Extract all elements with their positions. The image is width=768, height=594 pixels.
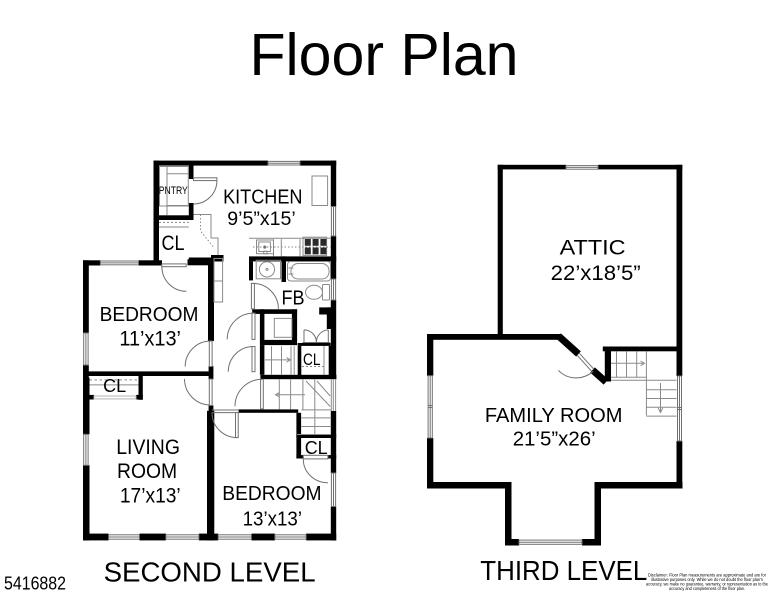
svg-text:9’5”x15’: 9’5”x15’ bbox=[227, 208, 296, 230]
svg-text:BEDROOM: BEDROOM bbox=[222, 482, 321, 505]
svg-text:CL: CL bbox=[305, 437, 328, 458]
svg-text:13’x13’: 13’x13’ bbox=[243, 508, 302, 531]
svg-text:5416882: 5416882 bbox=[4, 573, 66, 594]
svg-text:ATTIC: ATTIC bbox=[560, 235, 626, 259]
svg-text:CL: CL bbox=[162, 232, 185, 255]
svg-text:Floor Plan: Floor Plan bbox=[250, 22, 519, 88]
svg-text:FAMILY ROOM: FAMILY ROOM bbox=[485, 405, 623, 427]
svg-text:accuracy and completeness of t: accuracy and completeness of the floor p… bbox=[669, 586, 745, 591]
svg-text:SECOND LEVEL: SECOND LEVEL bbox=[104, 557, 316, 588]
svg-text:PNTRY: PNTRY bbox=[159, 185, 188, 197]
svg-text:17’x13’: 17’x13’ bbox=[120, 484, 181, 507]
svg-text:21’5”x26’: 21’5”x26’ bbox=[513, 428, 596, 451]
svg-text:LIVING: LIVING bbox=[116, 436, 180, 459]
svg-text:11’x13’: 11’x13’ bbox=[119, 327, 181, 350]
svg-text:22’x18’5”: 22’x18’5” bbox=[551, 261, 641, 285]
svg-text:CL: CL bbox=[303, 351, 321, 369]
svg-text:THIRD LEVEL: THIRD LEVEL bbox=[480, 555, 647, 586]
svg-text:FB: FB bbox=[282, 287, 305, 309]
svg-text:CL: CL bbox=[103, 376, 126, 396]
svg-text:ROOM: ROOM bbox=[117, 460, 177, 483]
svg-text:BEDROOM: BEDROOM bbox=[100, 303, 199, 326]
svg-text:KITCHEN: KITCHEN bbox=[223, 187, 302, 209]
